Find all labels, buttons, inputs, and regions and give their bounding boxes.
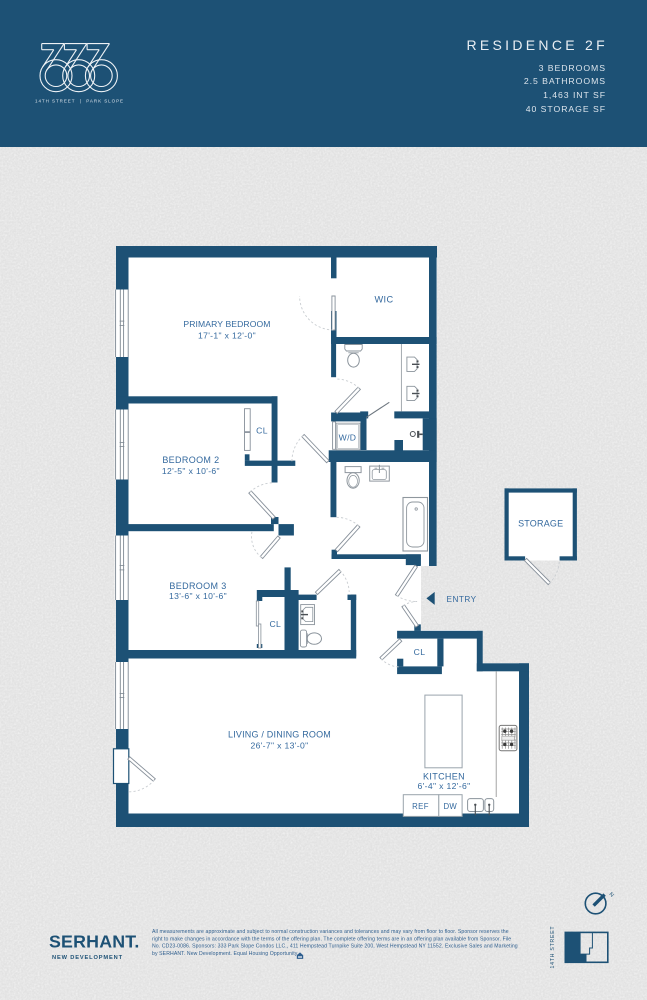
svg-text:SERHANT.: SERHANT. <box>49 932 140 952</box>
svg-text:All measurements are approxima: All measurements are approximate and sub… <box>152 929 509 935</box>
svg-text:N: N <box>608 892 615 899</box>
svg-text:right to make changes in accor: right to make changes in accordance with… <box>152 936 511 942</box>
svg-text:No. CD23-0086. Sponsors: 333 P: No. CD23-0086. Sponsors: 333 Park Slope … <box>152 944 518 950</box>
svg-text:14TH STREET: 14TH STREET <box>550 926 556 969</box>
svg-text:by SERHANT. New Development. E: by SERHANT. New Development. Equal Housi… <box>152 951 299 957</box>
svg-text:NEW DEVELOPMENT: NEW DEVELOPMENT <box>52 955 123 961</box>
